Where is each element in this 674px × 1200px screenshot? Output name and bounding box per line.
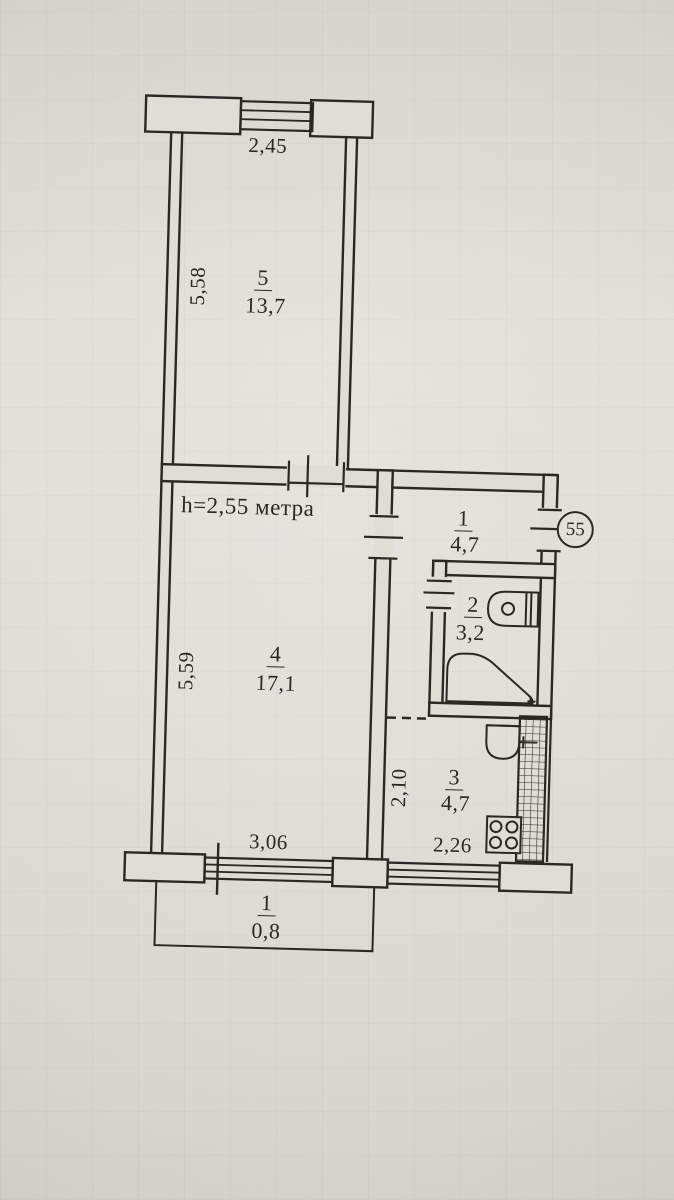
room5-number: 5 — [254, 267, 272, 291]
hallway-number: 1 — [454, 507, 472, 531]
room4-number: 4 — [267, 643, 285, 667]
wall-cap-top-left — [145, 96, 241, 135]
dimension-room4-depth: 5,59 — [175, 651, 197, 690]
wall-left-exterior — [150, 125, 182, 879]
room4-area: 17,1 — [255, 672, 296, 695]
dimension-room5-width: 2,45 — [248, 135, 287, 157]
dimension-room4-width: 3,06 — [249, 831, 288, 853]
scanned-floor-plan-photo: 2,45 5,58 5 13,7 h=2,55 метра 1 4,7 2 3,… — [0, 0, 674, 1200]
floor-plan: 2,45 5,58 5 13,7 h=2,55 метра 1 4,7 2 3,… — [0, 0, 674, 1200]
dimension-room5-depth: 5,58 — [187, 266, 209, 305]
hallway-area: 4,7 — [450, 533, 480, 556]
dimension-kitchen-width: 2,26 — [433, 834, 472, 856]
floor-plan-drawing — [0, 0, 674, 1200]
washbasin-icon — [488, 591, 539, 626]
window-kitchen — [387, 863, 500, 887]
dimension-kitchen-depth: 2,10 — [388, 768, 410, 807]
room5-area: 13,7 — [245, 294, 286, 317]
wall-cap-bottom-right — [499, 863, 572, 893]
wall-room5-room4 — [161, 464, 392, 487]
ceiling-height-note: h=2,55 метра — [181, 493, 315, 520]
wall-cap-top-right — [310, 100, 373, 138]
wall-room5-right — [337, 130, 358, 480]
wall-hallway-bathroom — [433, 561, 555, 578]
stove-icon — [486, 816, 521, 853]
balcony-area: 0,8 — [251, 920, 281, 943]
dashed-opening-kitchen — [387, 717, 429, 718]
kitchen-area: 4,7 — [441, 792, 471, 815]
kitchen-number: 3 — [445, 766, 463, 790]
window-room5 — [240, 101, 313, 131]
bathroom-number: 2 — [464, 594, 482, 618]
wall-cap-bottom-mid — [332, 858, 388, 888]
wall-cap-bottom-left — [124, 852, 205, 882]
wall-hallway-top — [392, 471, 557, 493]
bathroom-area: 3,2 — [456, 621, 486, 644]
balcony-number: 1 — [258, 892, 276, 916]
bathtub-icon — [446, 653, 536, 705]
